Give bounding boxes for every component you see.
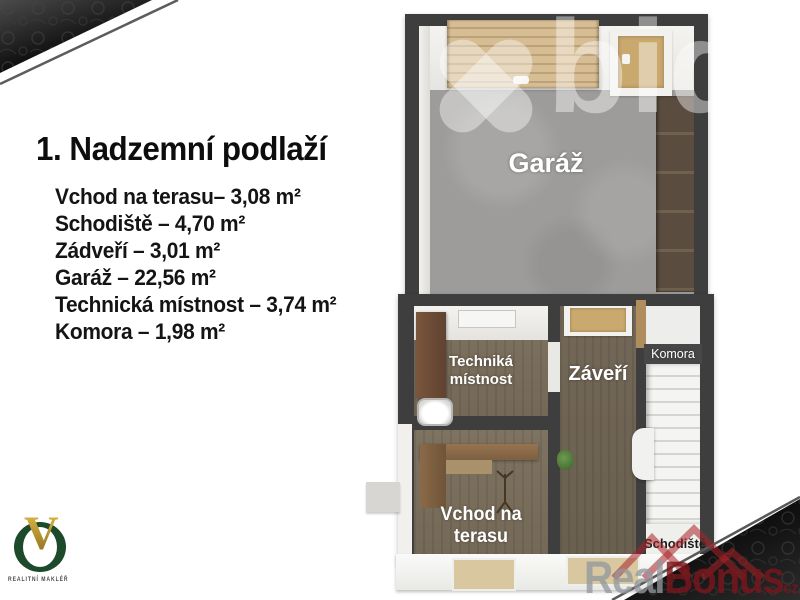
- stair-landing: [632, 428, 654, 480]
- desk-side: [420, 444, 446, 508]
- agency-logo: V REALITNÍ MAKLÉŘ: [8, 508, 88, 592]
- hall-door: [570, 308, 626, 332]
- technical-room-door-opening: [548, 342, 560, 392]
- entry-hall: [560, 306, 636, 556]
- garage-shelving: [656, 96, 694, 292]
- room-area-item: Vchod na terasu– 3,08 m²: [55, 183, 336, 210]
- entry-door-handle-icon: [622, 54, 630, 64]
- floor-plan: Garáž Techniká místnost Záveří Komora Sc…: [395, 8, 720, 592]
- room-area-item: Technická místnost – 3,74 m²: [55, 291, 336, 318]
- technical-room-window: [458, 310, 516, 328]
- bottom-door-right: [566, 556, 640, 586]
- sink-icon: [417, 398, 453, 426]
- room-area-list: Vchod na terasu– 3,08 m² Schodiště – 4,7…: [55, 183, 336, 345]
- pantry-label: Komora: [644, 347, 702, 361]
- garage-room-label: Garáž: [476, 148, 616, 179]
- room-area-item: Schodiště – 4,70 m²: [55, 210, 336, 237]
- corner-pattern-top-left: [0, 0, 152, 73]
- garage-left-wall-face: [419, 26, 430, 294]
- exterior-wall-bottom: [396, 554, 718, 590]
- staircase-label: Schodiště: [635, 536, 715, 551]
- exterior-wall-face-left: [398, 424, 412, 556]
- room-area-item: Zádveří – 3,01 m²: [55, 237, 336, 264]
- room-area-item: Garáž – 22,56 m²: [55, 264, 336, 291]
- bottom-door-left: [452, 558, 516, 591]
- garage-door-handle-icon: [513, 76, 529, 84]
- technical-room-label-line2: místnost: [421, 371, 541, 389]
- diagonal-line-top-left: [0, 0, 178, 84]
- plant-icon: [557, 450, 574, 470]
- corner-triangle-top-left: [0, 0, 152, 73]
- entry-hall-label: Záveří: [560, 363, 636, 386]
- page-title: 1. Nadzemní podlaží: [36, 130, 327, 168]
- technical-room-label-line1: Techniká: [421, 353, 541, 371]
- garage-floor: [419, 90, 694, 294]
- realbonus-text-tld: cz: [783, 580, 798, 597]
- staircase: [646, 364, 700, 524]
- slide-page: 1. Nadzemní podlaží Vchod na terasu– 3,0…: [0, 0, 800, 600]
- technical-room-label: Techniká místnost: [421, 353, 541, 389]
- terrace-entrance-label: Vchod na terasu: [415, 504, 548, 548]
- agency-logo-caption: REALITNÍ MAKLÉŘ: [8, 576, 78, 583]
- room-area-item: Komora – 1,98 m²: [55, 318, 336, 345]
- agency-logo-monogram: V: [24, 510, 59, 558]
- pantry-door: [636, 300, 646, 348]
- terrace-step: [366, 482, 400, 512]
